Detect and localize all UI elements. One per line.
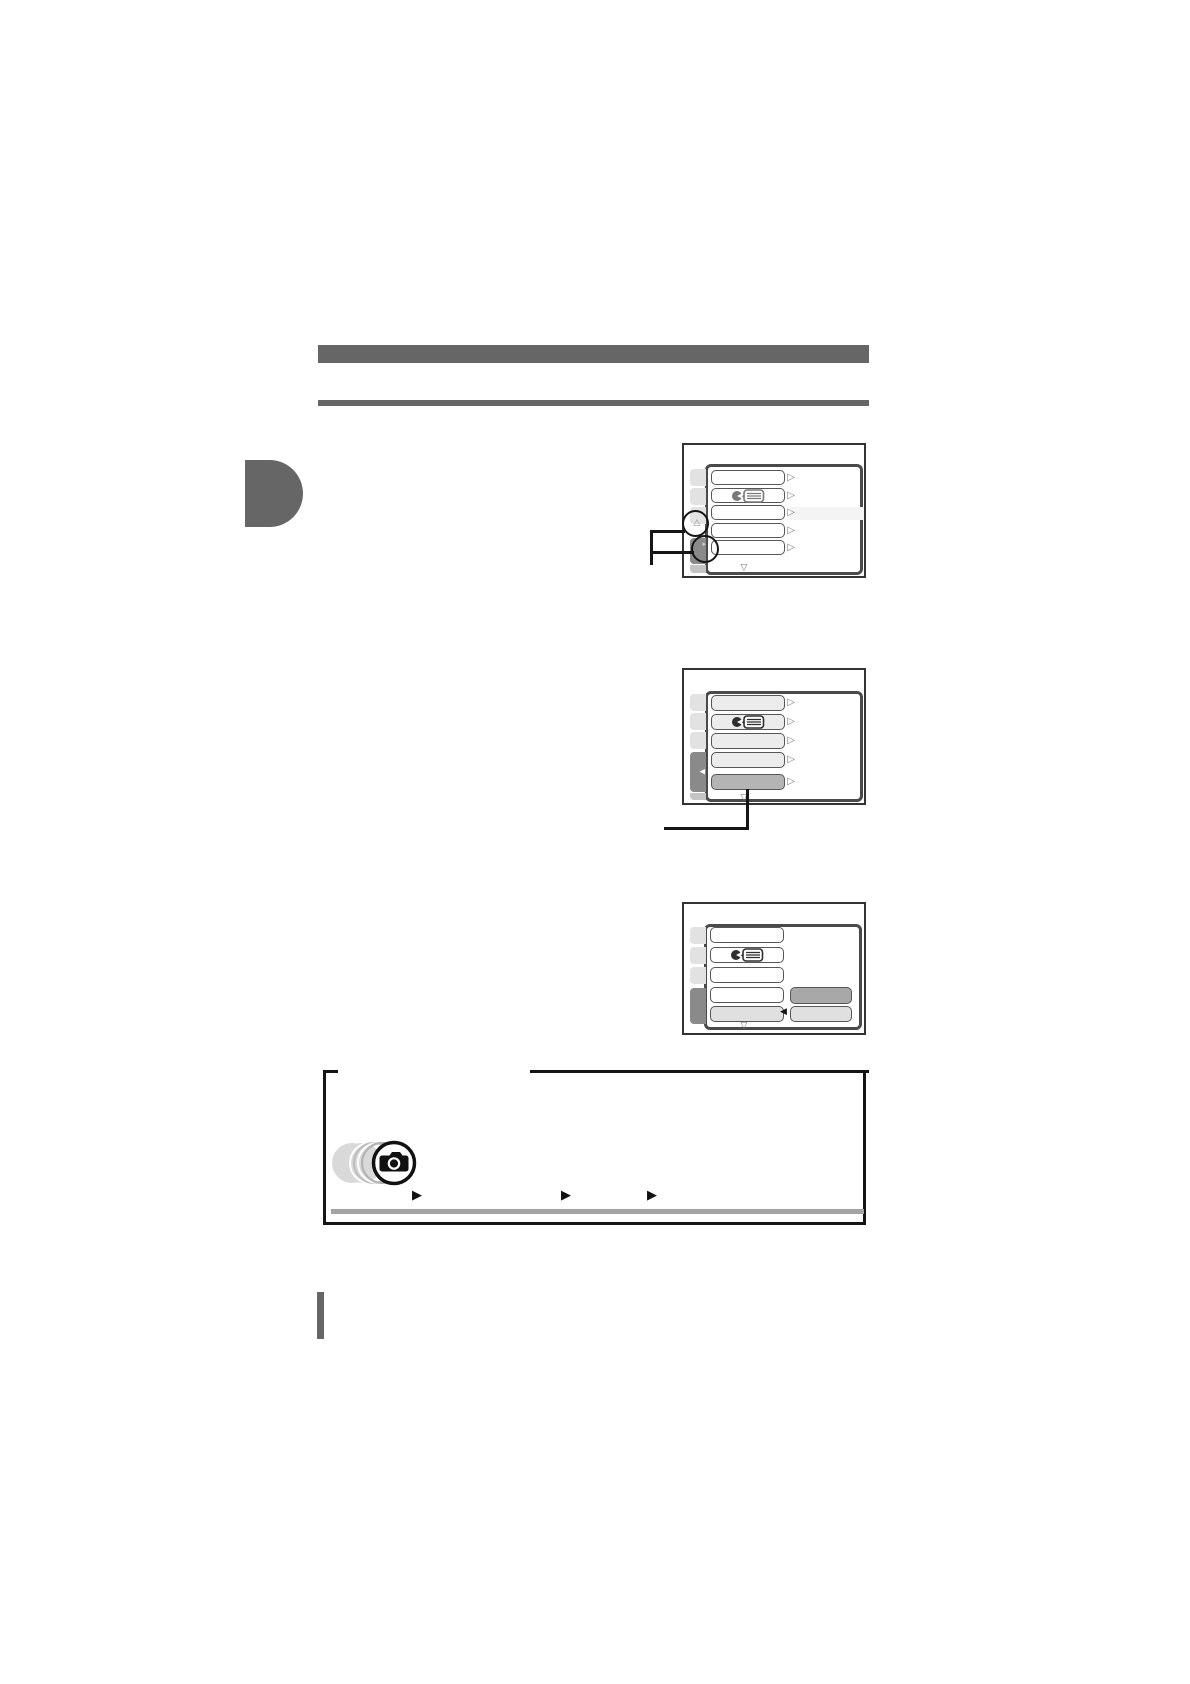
item-arrow-icon: ▷	[787, 543, 795, 553]
paragraph-side-rule	[317, 1292, 324, 1339]
item-arrow-icon: ▷	[787, 755, 795, 765]
menu-item-row-highlighted: ▷	[711, 774, 785, 790]
menu-item-row	[710, 947, 784, 963]
menu-sidebar-tab-partial	[690, 793, 706, 800]
section-header-bar	[318, 345, 869, 363]
menu-item-row-active	[710, 1006, 784, 1022]
menu-sidebar-tab-selected: ◀	[690, 752, 706, 792]
menu-item-row: ▷	[711, 733, 785, 749]
chapter-thumb-tab	[245, 460, 303, 527]
item-arrow-icon: ▷	[787, 526, 795, 536]
speaking-person-list-icon	[730, 947, 764, 963]
menu-sidebar-tab	[690, 488, 706, 505]
annotation-circle-scroll-up	[682, 510, 709, 537]
menu-sidebar-tab	[690, 947, 706, 964]
menu-sidebar-tab	[690, 694, 706, 711]
menu-sidebar-tab	[690, 927, 706, 944]
note-bottom-rule	[331, 1209, 864, 1214]
note-bullet-arrow-icon: ▶	[412, 1189, 422, 1202]
menu-item-row: ▷	[711, 714, 785, 730]
menu-item-row: ▷	[711, 523, 785, 538]
menu-sidebar-tab	[690, 713, 706, 730]
item-arrow-icon: ▷	[787, 508, 795, 518]
note-bullet-arrow-icon: ▶	[647, 1189, 657, 1202]
scroll-down-icon: ▽	[730, 1021, 758, 1031]
callout-line	[664, 827, 749, 830]
menu-item-row	[710, 967, 784, 983]
menu-sidebar-tab	[690, 469, 706, 486]
scroll-down-icon: ▽	[730, 793, 758, 803]
menu-item-row: ▷	[711, 470, 785, 485]
callout-line	[746, 789, 749, 830]
item-arrow-icon: ▷	[787, 717, 795, 727]
callout-line	[650, 551, 694, 554]
menu-item-row: ▷	[711, 695, 785, 711]
item-arrow-icon: ▷	[787, 473, 795, 483]
menu-item-row: ▷	[711, 505, 785, 520]
menu-item-row	[710, 927, 784, 943]
item-arrow-icon: ▷	[787, 491, 795, 501]
note-box: ▶ ▶ ▶	[323, 1070, 866, 1225]
menu-item-row: ▷	[711, 752, 785, 768]
callout-line	[650, 530, 653, 565]
submenu-option	[790, 1006, 852, 1022]
menu-sidebar-tab-selected	[690, 988, 706, 1024]
scroll-down-icon: ▽	[730, 563, 758, 573]
camera-icon	[330, 1140, 422, 1186]
camera-menu-screen-step3: ◀ ▽	[682, 902, 866, 1035]
menu-item-row: ▷	[711, 488, 785, 503]
annotation-circle-tab-pointer	[691, 535, 719, 563]
note-bullet-arrow-icon: ▶	[561, 1189, 571, 1202]
note-box-border-segment	[323, 1070, 338, 1073]
section-divider-rule	[318, 400, 869, 406]
menu-sidebar-tab	[690, 967, 706, 984]
menu-sidebar-tab	[690, 732, 706, 749]
menu-item-row	[710, 987, 784, 1003]
tab-pointer-icon: ◀	[700, 769, 705, 776]
manual-page: △ ▸ ▷ ▷ ▷ ▷ ▷ ▽	[0, 0, 1190, 1684]
item-arrow-icon: ▷	[787, 698, 795, 708]
menu-panel-highlight-area	[790, 507, 864, 520]
camera-menu-screen-step2: ◀ ▷ ▷ ▷ ▷ ▷ ▽	[682, 668, 866, 805]
callout-line	[650, 530, 685, 533]
item-arrow-icon: ▷	[787, 777, 795, 787]
speaking-person-list-icon	[731, 714, 765, 730]
submenu-option-highlighted	[790, 987, 852, 1004]
submenu-pointer-icon: ◀	[780, 1008, 787, 1017]
speaking-person-list-icon	[731, 488, 765, 504]
menu-item-row: ▷	[711, 540, 785, 555]
item-arrow-icon: ▷	[787, 736, 795, 746]
menu-sidebar-tab-partial	[690, 565, 706, 573]
note-box-border-segment	[530, 1070, 869, 1073]
